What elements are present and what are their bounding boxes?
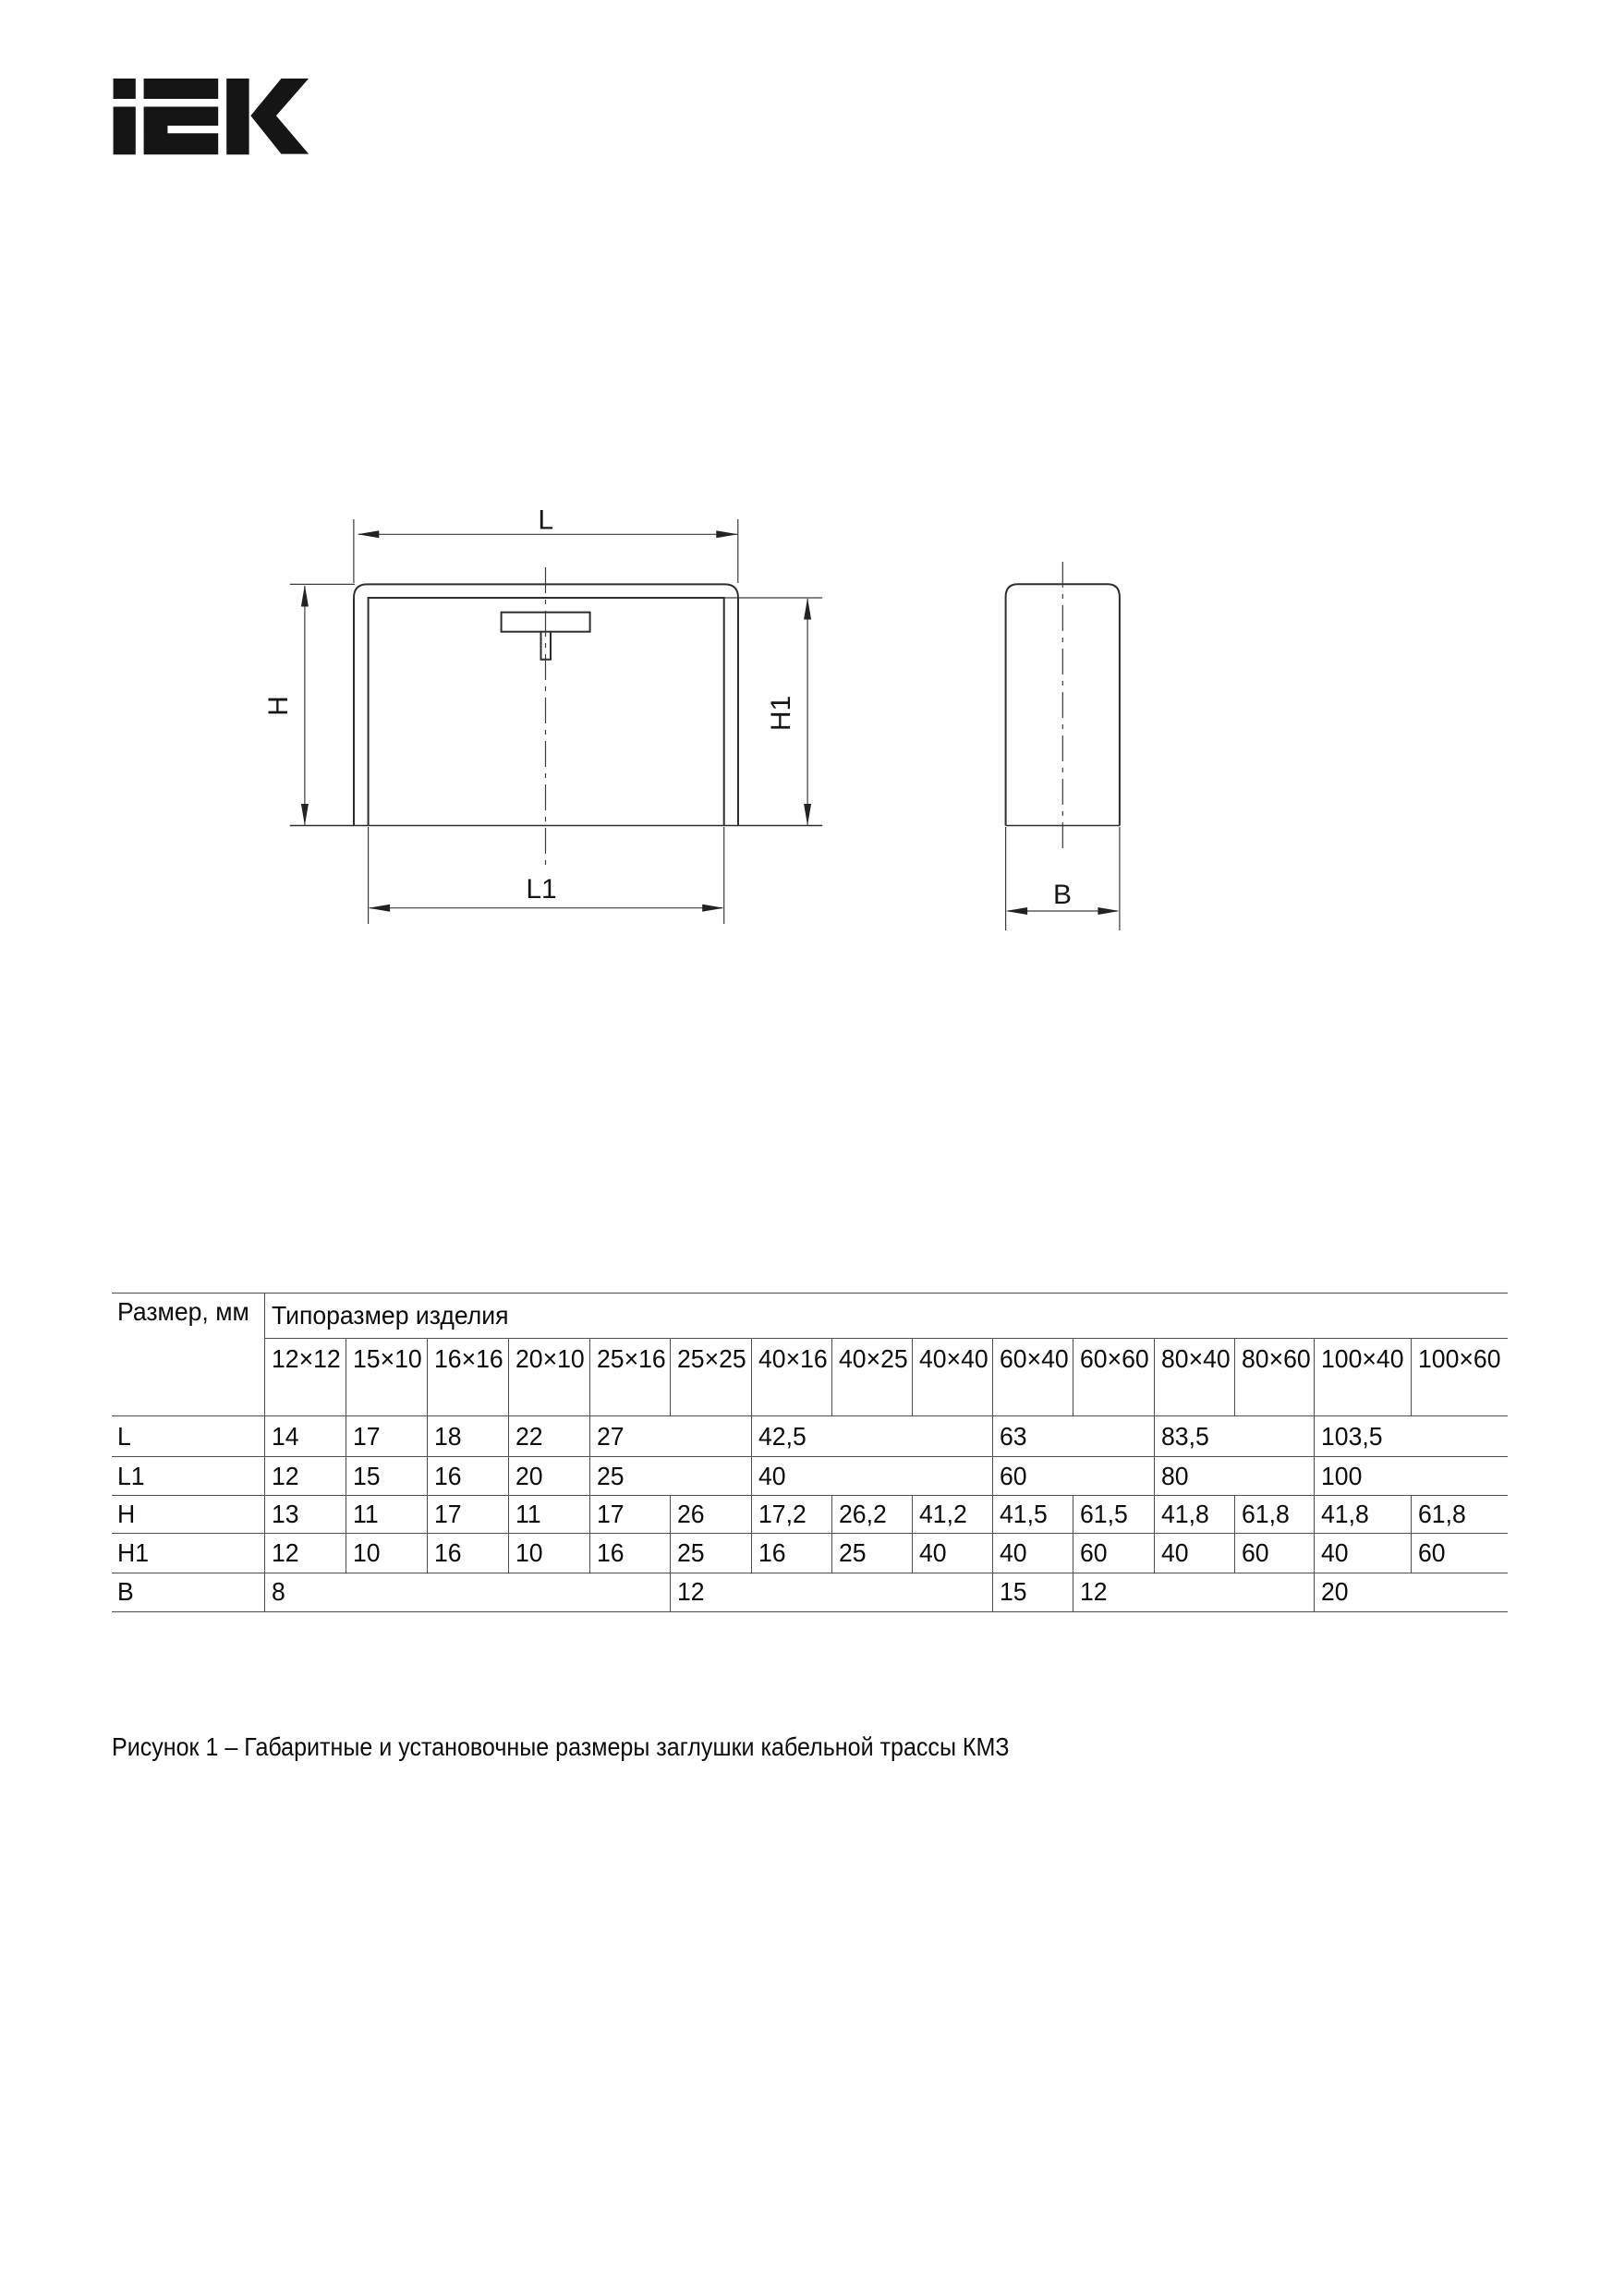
svg-text:H: H [263,696,294,716]
svg-text:L: L [538,505,553,536]
svg-text:H1: H1 [766,696,796,731]
svg-text:L1: L1 [526,874,556,905]
svg-text:B: B [1053,880,1072,910]
